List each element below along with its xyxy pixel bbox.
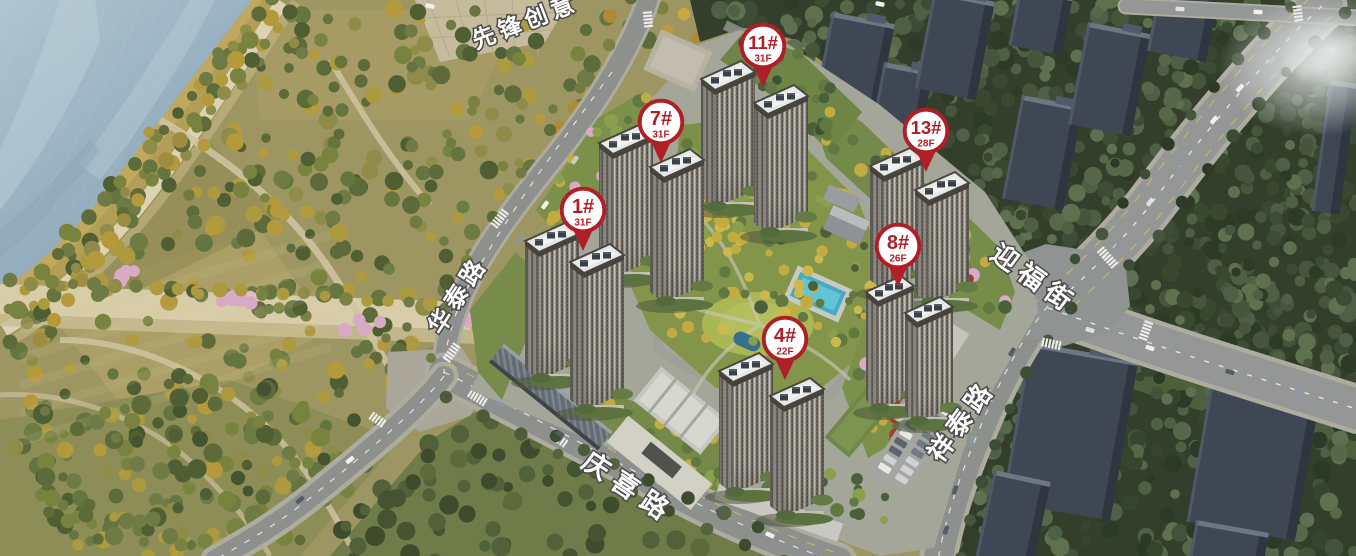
svg-text:31F: 31F [754,54,771,65]
svg-text:31F: 31F [652,130,669,141]
svg-text:13#: 13# [911,117,942,138]
svg-text:11#: 11# [748,32,778,53]
svg-text:26F: 26F [889,254,906,265]
svg-text:31F: 31F [574,218,591,229]
svg-text:8#: 8# [887,232,909,254]
svg-text:1#: 1# [572,196,594,218]
svg-text:28F: 28F [917,139,934,150]
svg-text:7#: 7# [650,108,672,130]
svg-text:22F: 22F [776,347,793,358]
svg-text:4#: 4# [774,325,796,347]
